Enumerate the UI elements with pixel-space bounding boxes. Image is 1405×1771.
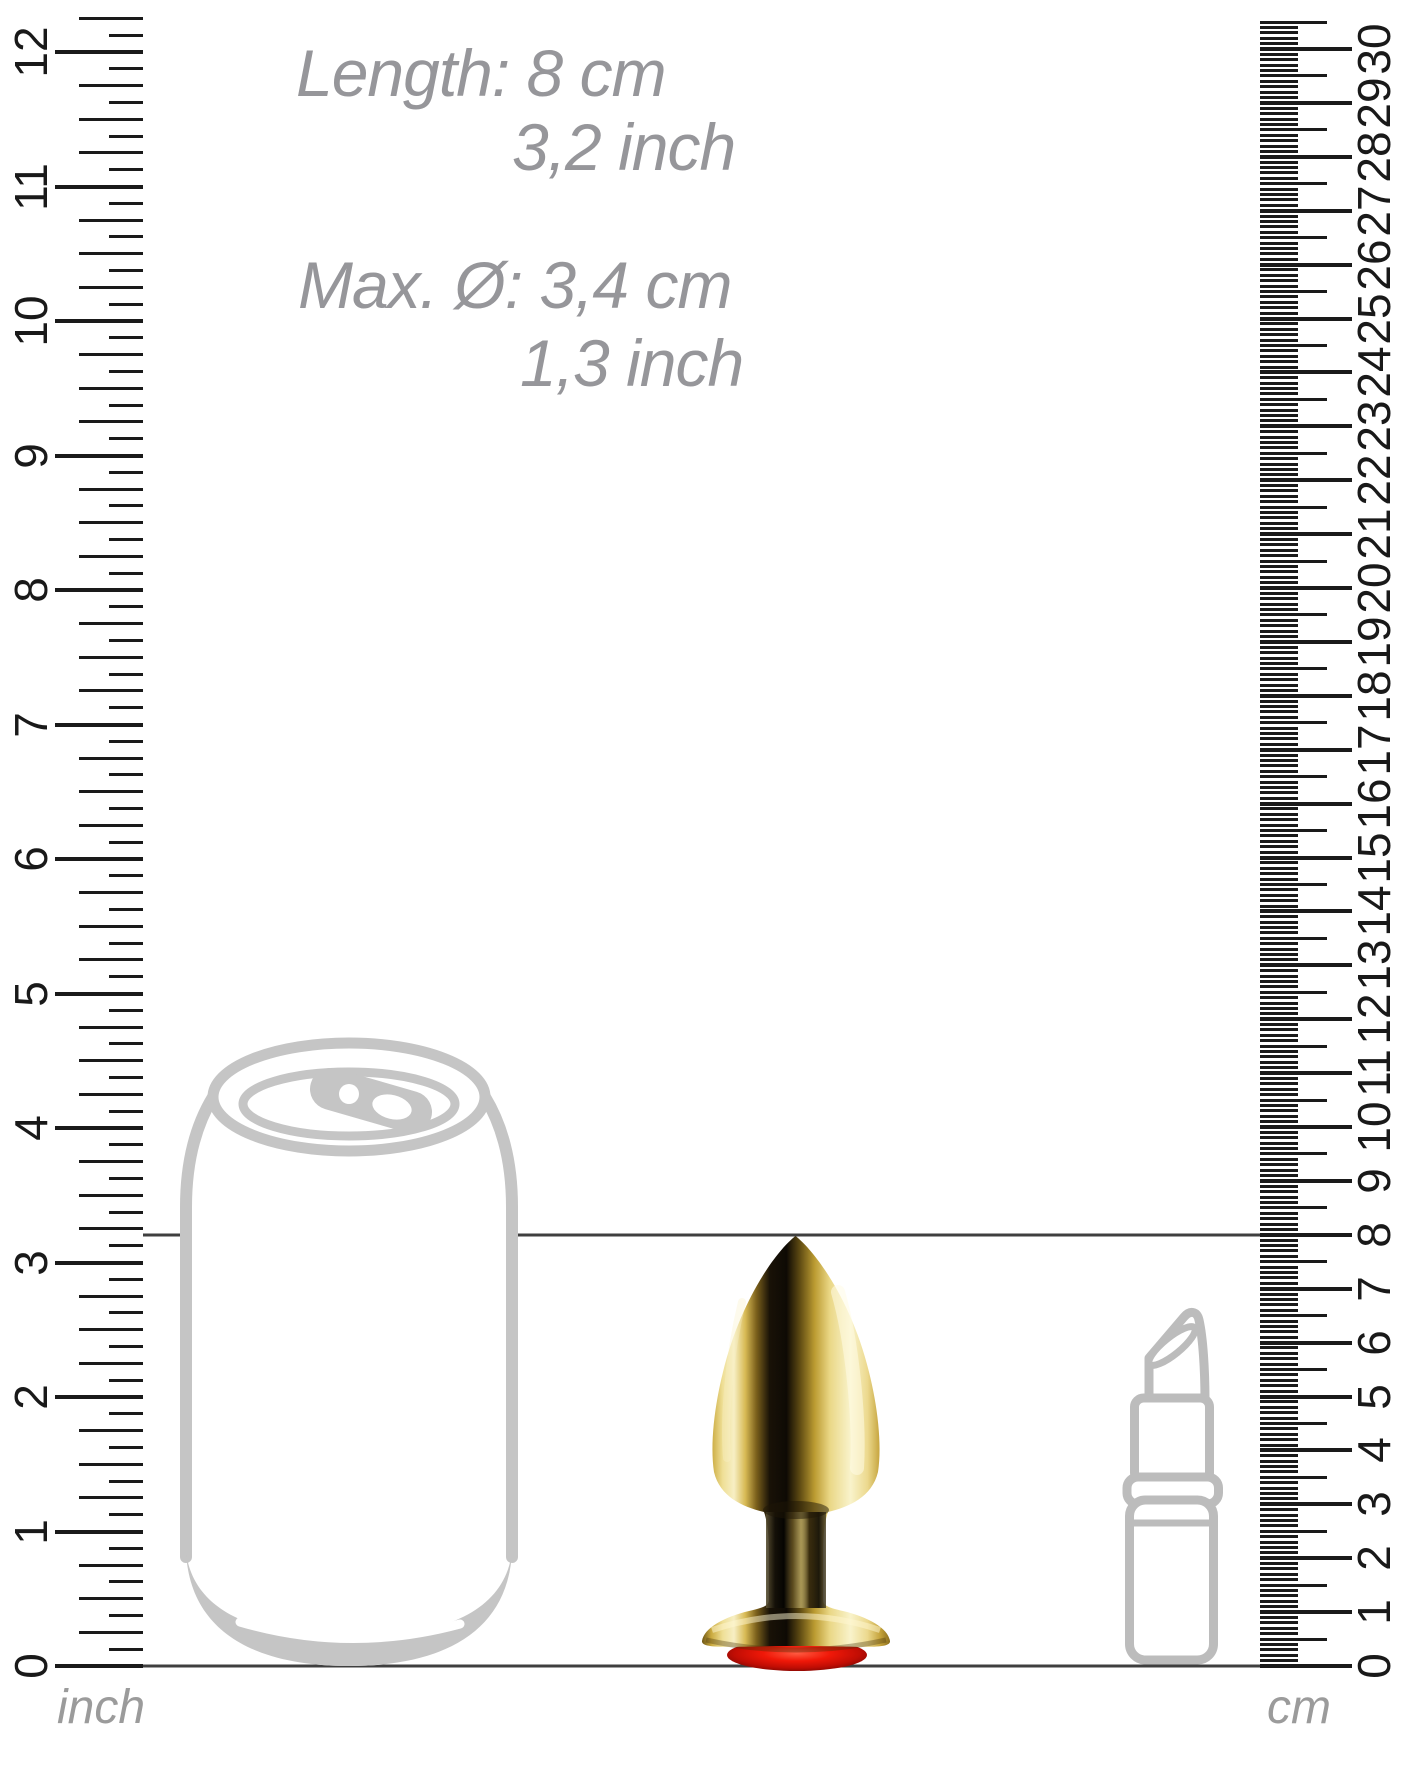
cm-ruler-number: 28	[1351, 131, 1397, 182]
cm-ruler-tick	[1260, 754, 1298, 757]
cm-ruler-tick	[1260, 1028, 1298, 1031]
cm-ruler-number: 25	[1351, 293, 1397, 344]
cm-ruler-number: 8	[1351, 1222, 1397, 1248]
cm-ruler-tick	[1260, 543, 1298, 546]
cm-ruler-tick	[1260, 721, 1327, 724]
cm-ruler-tick	[1260, 824, 1298, 827]
cm-ruler-number: 18	[1351, 670, 1397, 721]
cm-ruler-tick	[1260, 1551, 1298, 1554]
cm-ruler-tick	[1260, 495, 1298, 498]
cm-ruler-number: 19	[1351, 616, 1397, 667]
cm-ruler-tick	[1260, 775, 1327, 778]
cm-ruler-tick	[1260, 101, 1352, 105]
cm-ruler-tick	[1260, 468, 1298, 471]
cm-ruler-tick	[1260, 1643, 1298, 1646]
cm-ruler-tick	[1260, 1266, 1298, 1269]
cm-ruler-tick	[1260, 899, 1298, 902]
cm-ruler-tick	[1260, 360, 1298, 363]
cm-ruler-tick	[1260, 166, 1298, 169]
cm-ruler-tick	[1260, 1524, 1298, 1527]
cm-ruler-tick	[1260, 53, 1298, 56]
cm-ruler-tick	[1260, 463, 1298, 466]
cm-ruler-tick	[1260, 414, 1298, 417]
cm-ruler-tick	[1260, 1249, 1298, 1252]
cm-ruler-tick	[1260, 1012, 1298, 1015]
cm-ruler-tick	[1260, 1448, 1352, 1452]
cm-ruler-tick	[1260, 1174, 1298, 1177]
cm-ruler-tick	[1260, 1400, 1298, 1403]
cm-ruler-tick	[1260, 1002, 1298, 1005]
cm-ruler-tick	[1260, 716, 1298, 719]
cm-ruler-tick	[1260, 1217, 1298, 1220]
cm-ruler-tick	[1260, 1163, 1298, 1166]
cm-ruler-tick	[1260, 1519, 1298, 1522]
cm-ruler-tick	[1260, 1142, 1298, 1145]
cm-ruler-tick	[1260, 807, 1298, 810]
cm-ruler-tick	[1260, 689, 1298, 692]
cm-ruler-number: 14	[1351, 886, 1397, 937]
cm-ruler-tick	[1260, 527, 1298, 530]
cm-ruler-tick	[1260, 1228, 1298, 1231]
cm-ruler-tick	[1260, 398, 1327, 401]
cm-ruler-tick	[1260, 942, 1298, 945]
cm-ruler-tick	[1260, 1212, 1298, 1215]
cm-ruler-number: 6	[1351, 1330, 1397, 1356]
cm-ruler-tick	[1260, 441, 1298, 444]
cm-ruler-tick	[1260, 1610, 1352, 1614]
cm-ruler-tick	[1260, 473, 1298, 476]
cm-ruler-tick	[1260, 1395, 1352, 1399]
cm-ruler-tick	[1260, 813, 1298, 816]
cm-ruler-tick	[1260, 538, 1298, 541]
cm-ruler-tick	[1260, 1363, 1298, 1366]
cm-ruler-tick	[1260, 1099, 1327, 1102]
cm-ruler-tick	[1260, 1320, 1298, 1323]
cm-ruler-tick	[1260, 58, 1298, 61]
cm-ruler-tick	[1260, 1050, 1298, 1053]
cm-ruler-number: 22	[1351, 455, 1397, 506]
cm-ruler-tick	[1260, 673, 1298, 676]
cm-ruler-tick	[1260, 209, 1352, 213]
cm-ruler-tick	[1260, 1309, 1298, 1312]
cm-ruler-tick	[1260, 279, 1298, 282]
cm-ruler-tick	[1260, 867, 1298, 870]
cm-ruler-tick	[1260, 1185, 1298, 1188]
cm-ruler-tick	[1260, 586, 1352, 590]
cm-ruler-tick	[1260, 1136, 1298, 1139]
cm-ruler-tick	[1260, 597, 1298, 600]
cm-ruler-tick	[1260, 177, 1298, 180]
cm-ruler-tick	[1260, 727, 1298, 730]
cm-ruler-tick	[1260, 931, 1298, 934]
cm-ruler-tick	[1260, 392, 1298, 395]
cm-ruler-tick	[1260, 640, 1352, 644]
cm-ruler-tick	[1260, 134, 1298, 137]
cm-ruler-tick	[1260, 1373, 1298, 1376]
cm-ruler-tick	[1260, 1131, 1298, 1134]
cm-ruler-tick	[1260, 1427, 1298, 1430]
cm-ruler-tick	[1260, 339, 1298, 342]
cm-ruler-tick	[1260, 624, 1298, 627]
cm-ruler-tick	[1260, 1433, 1298, 1436]
cm-ruler-tick	[1260, 1152, 1327, 1155]
cm-ruler-tick	[1260, 592, 1298, 595]
cm-ruler-tick	[1260, 1023, 1298, 1026]
cm-ruler-tick	[1260, 786, 1298, 789]
cm-ruler-number: 12	[1351, 994, 1397, 1045]
cm-ruler-tick	[1260, 424, 1352, 428]
cm-ruler-tick	[1260, 1233, 1352, 1237]
cm-ruler-tick	[1260, 1535, 1298, 1538]
cm-ruler-tick	[1260, 1368, 1327, 1371]
cm-ruler-tick	[1260, 21, 1327, 24]
cm-ruler-tick	[1260, 894, 1298, 897]
cm-ruler-tick	[1260, 1584, 1327, 1587]
cm-ruler-tick	[1260, 905, 1298, 908]
cm-ruler-tick	[1260, 1648, 1298, 1651]
cm-ruler-tick	[1260, 328, 1298, 331]
cm-ruler-tick	[1260, 1530, 1327, 1533]
cm-ruler-tick	[1260, 1384, 1298, 1387]
cm-ruler-tick	[1260, 419, 1298, 422]
cm-ruler-tick	[1260, 1487, 1298, 1490]
cm-ruler-number: 13	[1351, 940, 1397, 991]
cm-ruler-tick	[1260, 317, 1352, 321]
cm-ruler-tick	[1260, 366, 1298, 369]
cm-ruler-tick	[1260, 1276, 1298, 1279]
cm-ruler-tick	[1260, 1476, 1327, 1479]
cm-ruler-tick	[1260, 31, 1298, 34]
cm-ruler-tick	[1260, 1541, 1298, 1544]
cm-ruler-tick	[1260, 872, 1298, 875]
cm-ruler-tick	[1260, 953, 1298, 956]
cm-ruler-tick	[1260, 565, 1298, 568]
cm-ruler-tick	[1260, 802, 1352, 806]
cm-ruler-number: 3	[1351, 1492, 1397, 1518]
cm-ruler-tick	[1260, 700, 1298, 703]
cm-ruler-tick	[1260, 263, 1352, 267]
cm-ruler-number: 4	[1351, 1438, 1397, 1464]
cm-ruler-number: 11	[1351, 1049, 1397, 1097]
cm-ruler-tick	[1260, 759, 1298, 762]
cm-ruler-tick	[1260, 1514, 1298, 1517]
cm-ruler-tick	[1260, 1357, 1298, 1360]
cm-ruler-tick	[1260, 290, 1327, 293]
cm-ruler-number: 2	[1351, 1545, 1397, 1571]
cm-ruler-tick	[1260, 198, 1298, 201]
cm-ruler-tick	[1260, 1465, 1298, 1468]
cm-ruler-tick	[1260, 139, 1298, 142]
cm-ruler-tick	[1260, 247, 1298, 250]
cm-ruler-tick	[1260, 1120, 1298, 1123]
cm-ruler-number: 29	[1351, 77, 1397, 128]
cm-ruler-tick	[1260, 996, 1298, 999]
cm-ruler-tick	[1260, 980, 1298, 983]
cm-ruler-tick	[1260, 532, 1352, 536]
cm-ruler-tick	[1260, 1497, 1298, 1500]
cm-ruler-tick	[1260, 258, 1298, 261]
cm-ruler-tick	[1260, 1007, 1298, 1010]
cm-ruler-number: 27	[1351, 185, 1397, 236]
cm-ruler-tick	[1260, 1271, 1298, 1274]
cm-ruler-tick	[1260, 236, 1327, 239]
cm-ruler-tick	[1260, 506, 1327, 509]
cm-ruler-number: 7	[1351, 1276, 1397, 1302]
cm-ruler-tick	[1260, 301, 1298, 304]
cm-ruler-tick	[1260, 915, 1298, 918]
cm-ruler-tick	[1260, 1438, 1298, 1441]
cm-ruler-tick	[1260, 312, 1298, 315]
cm-ruler-tick	[1260, 1659, 1298, 1662]
cm-ruler-tick	[1260, 630, 1298, 633]
cm-ruler-tick	[1260, 155, 1352, 159]
cm-ruler-number: 30	[1351, 23, 1397, 74]
cm-ruler-tick	[1260, 516, 1298, 519]
cm-ruler-tick	[1260, 770, 1298, 773]
cm-ruler-tick	[1260, 436, 1298, 439]
cm-ruler-number: 24	[1351, 347, 1397, 398]
cm-ruler-tick	[1260, 975, 1298, 978]
cm-ruler-tick	[1260, 603, 1298, 606]
cm-ruler-number: 5	[1351, 1384, 1397, 1410]
cm-ruler-tick	[1260, 1444, 1298, 1447]
cm-ruler-tick	[1260, 926, 1298, 929]
cm-ruler-tick	[1260, 1508, 1298, 1511]
cm-ruler-tick	[1260, 1055, 1298, 1058]
cm-ruler-tick	[1260, 958, 1298, 961]
cm-ruler-tick	[1260, 1567, 1298, 1570]
cm-ruler-tick	[1260, 684, 1298, 687]
cm-ruler-tick	[1260, 80, 1298, 83]
cm-ruler-tick	[1260, 1223, 1298, 1226]
cm-ruler-tick	[1260, 1454, 1298, 1457]
cm-ruler-tick	[1260, 204, 1298, 207]
cm-ruler-tick	[1260, 619, 1298, 622]
cm-ruler-tick	[1260, 1390, 1298, 1393]
cm-ruler-tick	[1260, 274, 1298, 277]
cm-ruler-tick	[1260, 1088, 1298, 1091]
cm-ruler-tick	[1260, 225, 1298, 228]
cm-ruler-tick	[1260, 349, 1298, 352]
cm-ruler-tick	[1260, 1293, 1298, 1296]
cm-ruler-tick	[1260, 1093, 1298, 1096]
cm-ruler-number: 10	[1351, 1101, 1397, 1152]
cm-ruler-tick	[1260, 1638, 1327, 1641]
cm-ruler-tick	[1260, 1260, 1327, 1263]
cm-ruler-tick	[1260, 1481, 1298, 1484]
cm-ruler-tick	[1260, 1422, 1327, 1425]
cm-ruler-tick	[1260, 118, 1298, 121]
cm-ruler-tick	[1260, 333, 1298, 336]
cm-ruler-tick	[1260, 851, 1298, 854]
cm-ruler-tick	[1260, 694, 1352, 698]
cm-ruler-tick	[1260, 1017, 1352, 1021]
cm-ruler-tick	[1260, 382, 1298, 385]
cm-ruler-tick	[1260, 829, 1327, 832]
cm-ruler-tick	[1260, 651, 1298, 654]
cm-ruler-tick	[1260, 1330, 1298, 1333]
cm-ruler-tick	[1260, 732, 1298, 735]
cm-ruler-number: 17	[1351, 724, 1397, 775]
cm-ruler-number: 9	[1351, 1168, 1397, 1194]
cm-ruler-tick	[1260, 705, 1298, 708]
cm-ruler-tick	[1260, 376, 1298, 379]
cm-ruler-tick	[1260, 1379, 1298, 1382]
cm-ruler-tick	[1260, 646, 1298, 649]
cm-ruler-tick	[1260, 667, 1327, 670]
cm-ruler-tick	[1260, 268, 1298, 271]
cm-ruler-tick	[1260, 150, 1298, 153]
cm-ruler-tick	[1260, 883, 1327, 886]
cm-ruler-tick	[1260, 1314, 1327, 1317]
cm-ruler-tick	[1260, 489, 1298, 492]
cm-ruler-tick	[1260, 1417, 1298, 1420]
cm-ruler-tick	[1260, 1600, 1298, 1603]
cm-ruler-tick	[1260, 409, 1298, 412]
cm-ruler-tick	[1260, 403, 1298, 406]
cm-ruler-tick	[1260, 781, 1298, 784]
cm-ruler: 0123456789101112131415161718192021222324…	[0, 0, 1405, 1771]
cm-ruler-tick	[1260, 1556, 1352, 1560]
cm-ruler-tick	[1260, 430, 1298, 433]
cm-ruler-tick	[1260, 921, 1298, 924]
cm-ruler-tick	[1260, 797, 1298, 800]
inch-unit-label: inch	[57, 1684, 145, 1732]
cm-ruler-tick	[1260, 1045, 1327, 1048]
cm-ruler-tick	[1260, 252, 1298, 255]
cm-ruler-tick	[1260, 355, 1298, 358]
cm-ruler-tick	[1260, 748, 1352, 752]
cm-ruler-tick	[1260, 193, 1298, 196]
cm-ruler-number: 26	[1351, 239, 1397, 290]
cm-ruler-tick	[1260, 107, 1298, 110]
cm-ruler-tick	[1260, 1341, 1352, 1345]
cm-ruler-tick	[1260, 42, 1298, 45]
cm-ruler-tick	[1260, 182, 1327, 185]
cm-ruler-tick	[1260, 1654, 1298, 1657]
cm-ruler-tick	[1260, 295, 1298, 298]
cm-ruler-tick	[1260, 791, 1298, 794]
cm-ruler-number: 0	[1351, 1653, 1397, 1679]
cm-ruler-tick	[1260, 1621, 1298, 1624]
cm-ruler-tick	[1260, 457, 1298, 460]
cm-ruler-tick	[1260, 969, 1298, 972]
cm-ruler-tick	[1260, 1406, 1298, 1409]
cm-ruler-tick	[1260, 128, 1327, 131]
cm-ruler-tick	[1260, 1578, 1298, 1581]
cm-ruler-tick	[1260, 306, 1298, 309]
cm-ruler-tick	[1260, 511, 1298, 514]
cm-ruler-tick	[1260, 145, 1298, 148]
cm-ruler-tick	[1260, 948, 1298, 951]
cm-ruler-tick	[1260, 1158, 1298, 1161]
cm-ruler-tick	[1260, 1109, 1298, 1112]
cm-ruler-number: 1	[1351, 1599, 1397, 1625]
cm-ruler-tick	[1260, 1627, 1298, 1630]
cm-ruler-tick	[1260, 215, 1298, 218]
cm-ruler-tick	[1260, 570, 1298, 573]
cm-ruler-tick	[1260, 387, 1298, 390]
cm-ruler-tick	[1260, 1336, 1298, 1339]
cm-ruler-tick	[1260, 840, 1298, 843]
cm-ruler-tick	[1260, 581, 1298, 584]
cm-ruler-tick	[1260, 737, 1298, 740]
cm-ruler-tick	[1260, 1325, 1298, 1328]
cm-ruler-tick	[1260, 764, 1298, 767]
cm-ruler-tick	[1260, 1239, 1298, 1242]
cm-ruler-tick	[1260, 678, 1298, 681]
cm-ruler-number: 21	[1351, 509, 1397, 560]
cm-ruler-tick	[1260, 1125, 1352, 1129]
cm-ruler-tick	[1260, 845, 1298, 848]
cm-ruler-tick	[1260, 344, 1327, 347]
cm-ruler-tick	[1260, 85, 1298, 88]
cm-ruler-tick	[1260, 1470, 1298, 1473]
cm-ruler-tick	[1260, 370, 1352, 374]
cm-ruler-tick	[1260, 1082, 1298, 1085]
cm-ruler-tick	[1260, 1206, 1327, 1209]
cm-ruler-tick	[1260, 576, 1298, 579]
cm-ruler-tick	[1260, 37, 1298, 40]
cm-ruler-tick	[1260, 1411, 1298, 1414]
cm-ruler-tick	[1260, 1605, 1298, 1608]
cm-ruler-tick	[1260, 91, 1298, 94]
cm-ruler-tick	[1260, 220, 1298, 223]
cm-ruler-tick	[1260, 1244, 1298, 1247]
cm-ruler-tick	[1260, 878, 1298, 881]
cm-ruler-tick	[1260, 1077, 1298, 1080]
cm-ruler-tick	[1260, 1179, 1352, 1183]
cm-ruler-tick	[1260, 1282, 1298, 1285]
cm-ruler-number: 16	[1351, 778, 1397, 829]
cm-ruler-tick	[1260, 47, 1352, 51]
cm-ruler-tick	[1260, 242, 1298, 245]
cm-ruler-tick	[1260, 1303, 1298, 1306]
cm-ruler-tick	[1260, 1632, 1298, 1635]
cm-ruler-tick	[1260, 96, 1298, 99]
cm-ruler-tick	[1260, 484, 1298, 487]
cm-ruler-tick	[1260, 991, 1327, 994]
cm-ruler-tick	[1260, 1034, 1298, 1037]
cm-ruler-tick	[1260, 64, 1298, 67]
cm-ruler-tick	[1260, 1201, 1298, 1204]
cm-ruler-tick	[1260, 818, 1298, 821]
cm-ruler-tick	[1260, 1616, 1298, 1619]
cm-ruler-tick	[1260, 1287, 1352, 1291]
cm-ruler-tick	[1260, 1298, 1298, 1301]
cm-ruler-tick	[1260, 112, 1298, 115]
cm-ruler-tick	[1260, 608, 1298, 611]
cm-ruler-tick	[1260, 1460, 1298, 1463]
cm-ruler-tick	[1260, 188, 1298, 191]
cm-ruler-tick	[1260, 452, 1327, 455]
cm-ruler-tick	[1260, 522, 1298, 525]
cm-ruler-tick	[1260, 1255, 1298, 1258]
cm-ruler-tick	[1260, 285, 1298, 288]
cm-ruler-tick	[1260, 1169, 1298, 1172]
cm-ruler-tick	[1260, 662, 1298, 665]
cm-ruler-tick	[1260, 1196, 1298, 1199]
cm-ruler-tick	[1260, 500, 1298, 503]
cm-ruler-number: 23	[1351, 401, 1397, 452]
cm-ruler-tick	[1260, 1664, 1352, 1668]
cm-ruler-number: 20	[1351, 562, 1397, 613]
cm-ruler-tick	[1260, 1071, 1352, 1075]
cm-ruler-tick	[1260, 1502, 1352, 1506]
cm-ruler-tick	[1260, 1594, 1298, 1597]
cm-ruler-tick	[1260, 123, 1298, 126]
cm-ruler-tick	[1260, 74, 1327, 77]
